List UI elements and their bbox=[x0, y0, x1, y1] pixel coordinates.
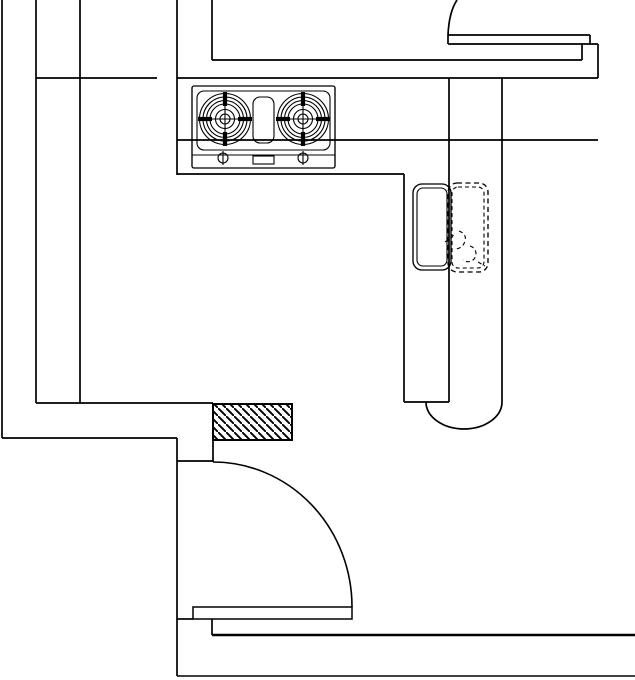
walls bbox=[2, 0, 635, 676]
sink[interactable] bbox=[413, 184, 451, 270]
floor-plan-canvas[interactable] bbox=[0, 0, 635, 680]
burner-right-icon bbox=[276, 92, 330, 146]
stove-nameplate bbox=[253, 156, 274, 164]
stove-cooktop-panel bbox=[197, 91, 330, 150]
floor-plan-drawing bbox=[0, 0, 635, 680]
counter[interactable] bbox=[177, 0, 598, 429]
stove-knob-left-icon bbox=[218, 151, 228, 165]
stove[interactable] bbox=[192, 86, 335, 168]
sink-inner-bowl bbox=[417, 188, 447, 266]
sink-dashed-outer-rim bbox=[448, 183, 488, 272]
door-swing-arc bbox=[213, 462, 352, 607]
column-hatch-fill bbox=[213, 404, 292, 440]
window-bar[interactable] bbox=[448, 0, 598, 78]
door[interactable] bbox=[177, 462, 352, 619]
door-leaf bbox=[193, 607, 352, 619]
column-hatched[interactable] bbox=[213, 404, 292, 462]
window-bar-curve bbox=[448, 0, 457, 44]
peninsula-rounded-end bbox=[426, 402, 502, 429]
sink-outer-rim bbox=[413, 184, 451, 270]
burner-left-icon bbox=[198, 92, 252, 146]
stove-center-plate bbox=[253, 97, 274, 143]
stove-knob-right-icon bbox=[298, 151, 308, 165]
sink-dashed-inner-bowl bbox=[452, 187, 484, 268]
